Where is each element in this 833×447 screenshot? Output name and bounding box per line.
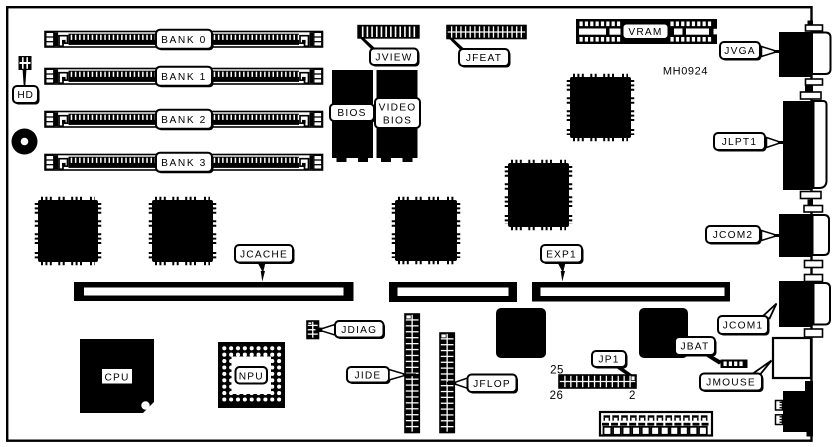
svg-text:JMOUSE: JMOUSE bbox=[706, 378, 756, 389]
svg-text:25: 25 bbox=[550, 365, 564, 377]
svg-text:BANK 2: BANK 2 bbox=[161, 115, 207, 126]
svg-text:JDIAG: JDIAG bbox=[341, 325, 377, 336]
svg-text:JFLOP: JFLOP bbox=[473, 379, 511, 390]
svg-text:BANK 0: BANK 0 bbox=[161, 35, 207, 46]
svg-text:JP1: JP1 bbox=[598, 355, 619, 366]
svg-text:JVGA: JVGA bbox=[724, 46, 755, 57]
svg-text:BANK 3: BANK 3 bbox=[161, 158, 207, 169]
svg-text:EXP1: EXP1 bbox=[546, 249, 577, 260]
svg-text:NPU: NPU bbox=[239, 372, 264, 383]
svg-text:VIDEO: VIDEO bbox=[379, 103, 417, 114]
svg-text:BIOS: BIOS bbox=[337, 108, 366, 119]
svg-text:26: 26 bbox=[550, 390, 564, 402]
svg-text:VRAM: VRAM bbox=[628, 27, 662, 38]
svg-text:HD: HD bbox=[17, 90, 33, 101]
svg-text:BANK 1: BANK 1 bbox=[161, 72, 207, 83]
svg-text:JLPT1: JLPT1 bbox=[722, 137, 757, 148]
svg-text:JVIEW: JVIEW bbox=[375, 52, 412, 63]
svg-text:JBAT: JBAT bbox=[681, 342, 710, 353]
svg-text:JCACHE: JCACHE bbox=[240, 249, 288, 260]
svg-text:2: 2 bbox=[629, 390, 636, 402]
svg-text:CPU: CPU bbox=[104, 373, 129, 384]
svg-text:JCOM1: JCOM1 bbox=[723, 321, 764, 332]
svg-text:JIDE: JIDE bbox=[355, 370, 382, 381]
svg-text:BIOS: BIOS bbox=[383, 116, 412, 127]
svg-text:MH0924: MH0924 bbox=[663, 66, 708, 78]
svg-text:JCOM2: JCOM2 bbox=[713, 230, 754, 241]
svg-text:JFEAT: JFEAT bbox=[466, 53, 502, 64]
